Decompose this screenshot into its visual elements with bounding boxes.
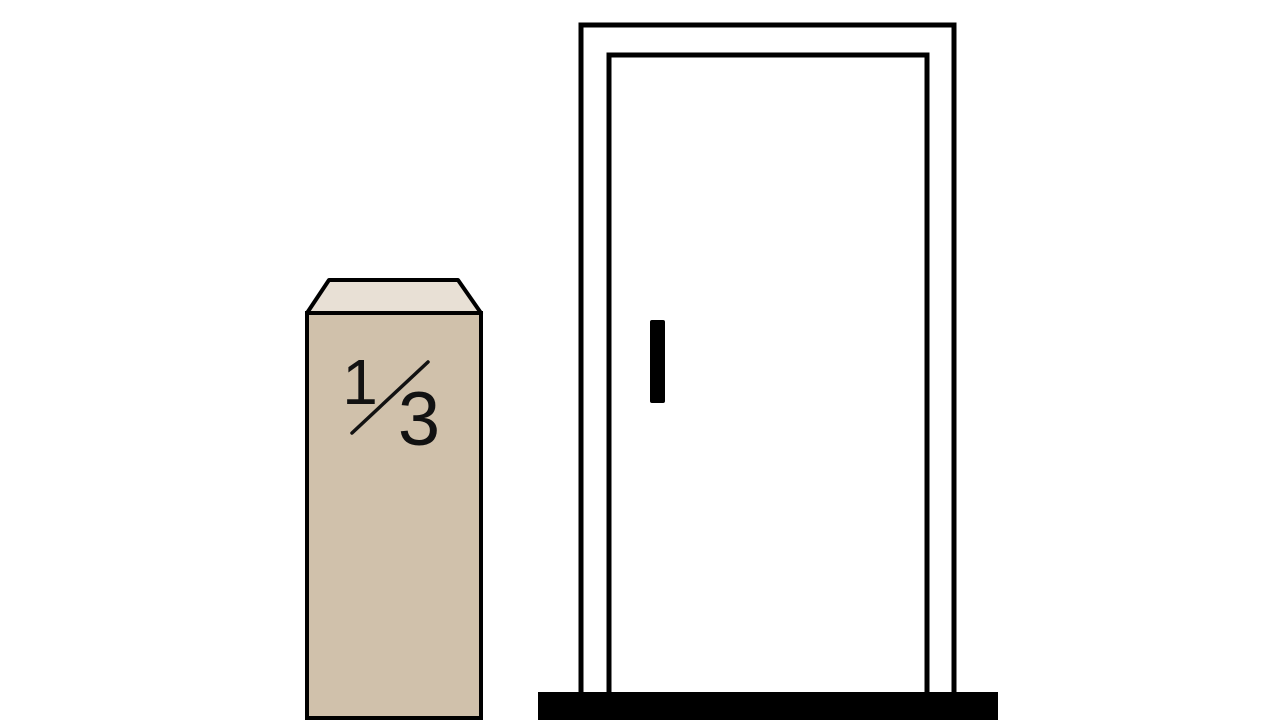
fraction-block: 1 3 (307, 280, 481, 718)
fraction-numerator: 1 (342, 346, 378, 418)
door (538, 25, 998, 720)
door-threshold (538, 692, 998, 720)
door-handle-icon (650, 320, 665, 403)
block-top-face (307, 280, 481, 313)
illustration-canvas: 1 3 (0, 0, 1280, 720)
block-front-face (307, 313, 481, 718)
fraction-denominator: 3 (398, 377, 440, 462)
fraction-block-and-door-illustration: 1 3 (0, 0, 1280, 720)
